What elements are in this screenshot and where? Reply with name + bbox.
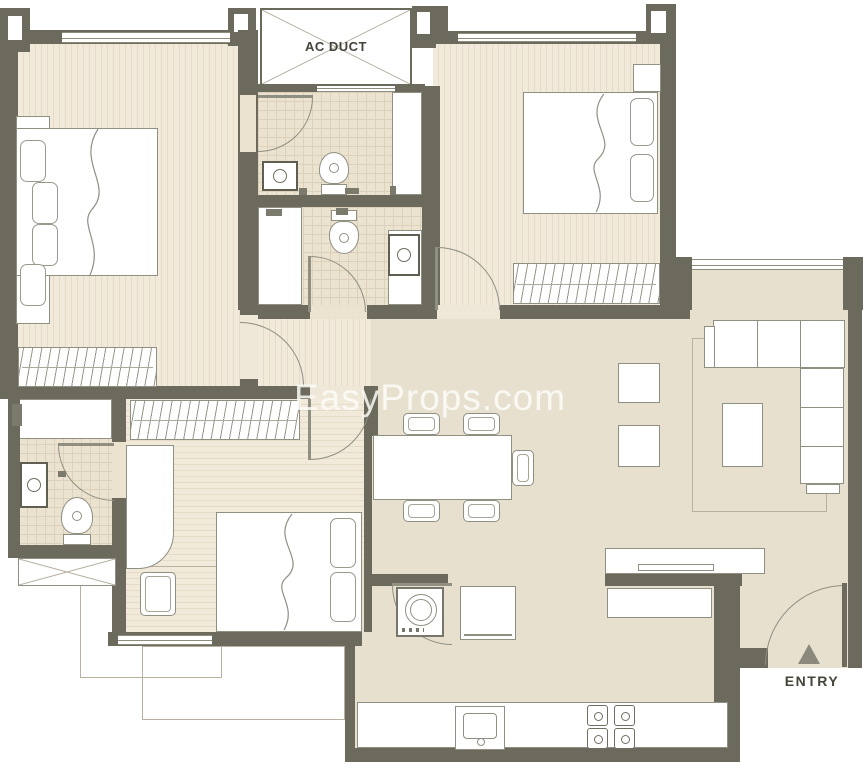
sofa-cushion-line — [801, 446, 843, 447]
bed-3-pillow — [330, 572, 356, 622]
ac-duct-label: AC DUCT — [262, 39, 410, 54]
wall-bedroom3-left-low — [112, 555, 126, 646]
sofa-cushion-line — [757, 321, 758, 367]
wardrobe-1 — [18, 347, 157, 387]
bath-3-door-leaf — [58, 443, 114, 446]
wall-bath3-bottom — [8, 545, 126, 558]
window-bedroom-1 — [62, 32, 230, 43]
bath-3-shower — [18, 399, 112, 439]
coffee-table — [722, 403, 763, 467]
bed-1-pillow — [32, 224, 58, 266]
window-living — [692, 259, 843, 270]
sofa-right — [800, 368, 844, 484]
entry-door-leaf — [842, 583, 847, 667]
window-bath-1 — [317, 84, 395, 92]
bath-1-fixture — [390, 186, 396, 195]
desk — [126, 445, 174, 569]
floor-plan: AC DUCT ENTRY EasyProps.com — [0, 0, 866, 768]
wall-bedroom3-right-low — [364, 436, 372, 632]
bath-1-sink — [262, 161, 298, 191]
kitchen-counter — [357, 702, 728, 748]
bath-2-toilet — [328, 210, 360, 254]
bath-2-sink — [388, 234, 420, 276]
wardrobe-2 — [513, 263, 660, 304]
dining-chair — [403, 500, 440, 522]
bed-1-pillow — [20, 264, 46, 306]
bath-2-fixture — [336, 208, 348, 215]
stove — [583, 702, 639, 750]
wall-bedroom2-right — [660, 43, 676, 259]
pillar-bedroom2-left — [430, 6, 448, 42]
window-bedroom-3 — [118, 635, 212, 645]
bath-1-fixture — [345, 188, 359, 194]
kitchen-door-leaf — [392, 583, 452, 586]
washing-machine — [396, 587, 444, 637]
dining-chair — [512, 450, 534, 486]
wall-bedroom1-right — [238, 30, 258, 310]
entry-label: ENTRY — [768, 673, 856, 689]
kitchen-sink — [455, 706, 505, 750]
bath-1-door-gap — [240, 95, 256, 152]
bed-2-pillow — [630, 98, 654, 146]
sofa-main — [713, 320, 845, 368]
wall-bath-divider — [258, 195, 422, 207]
bath-3-sink — [20, 462, 48, 508]
dining-table — [373, 435, 512, 500]
watermark: EasyProps.com — [225, 377, 635, 419]
wall-entry-stub — [740, 648, 768, 668]
balcony-bottom — [142, 646, 345, 720]
bed-1-pillow — [32, 182, 58, 224]
bath-1-door-leaf — [258, 95, 313, 98]
pillar-duct-right-notch — [417, 12, 430, 34]
fridge — [460, 586, 516, 640]
entry-marker — [798, 644, 820, 664]
bath-2-door-leaf — [308, 256, 311, 312]
bath-3-fixture — [12, 404, 22, 426]
bed-1-pillow — [20, 140, 46, 182]
bath-1-fixture — [299, 188, 307, 195]
bath-2-fixture — [266, 209, 282, 216]
bath-1-shower — [392, 92, 422, 195]
fridge-handle — [464, 634, 512, 636]
bath-2-counter — [258, 207, 302, 305]
ottoman-2 — [618, 425, 660, 467]
counter-lower — [607, 588, 712, 618]
pillar-living-left — [660, 257, 692, 310]
desk-chair — [140, 572, 176, 616]
sofa-end — [806, 484, 840, 494]
pillar-top-left-notch — [8, 16, 22, 40]
bath-3-door-gap — [112, 442, 126, 498]
window-bedroom-2 — [458, 33, 636, 42]
bedroom-2-door-leaf — [435, 247, 438, 310]
bed-3-pillow — [330, 518, 356, 568]
wall-living-right — [848, 266, 862, 668]
bed-2-pillow — [630, 154, 654, 202]
sofa-arm — [704, 326, 715, 368]
sofa-cushion-line — [800, 321, 801, 367]
wall-kitchen-bottom — [345, 748, 730, 762]
pillar-bedroom2-right-notch — [651, 11, 666, 33]
counter-shelf — [638, 564, 714, 571]
bath-3-toilet — [60, 497, 94, 545]
bed-2-side-table — [633, 64, 661, 92]
bath-3-fixture — [58, 471, 66, 477]
sofa-cushion-line — [801, 407, 843, 408]
dining-chair — [463, 500, 500, 522]
